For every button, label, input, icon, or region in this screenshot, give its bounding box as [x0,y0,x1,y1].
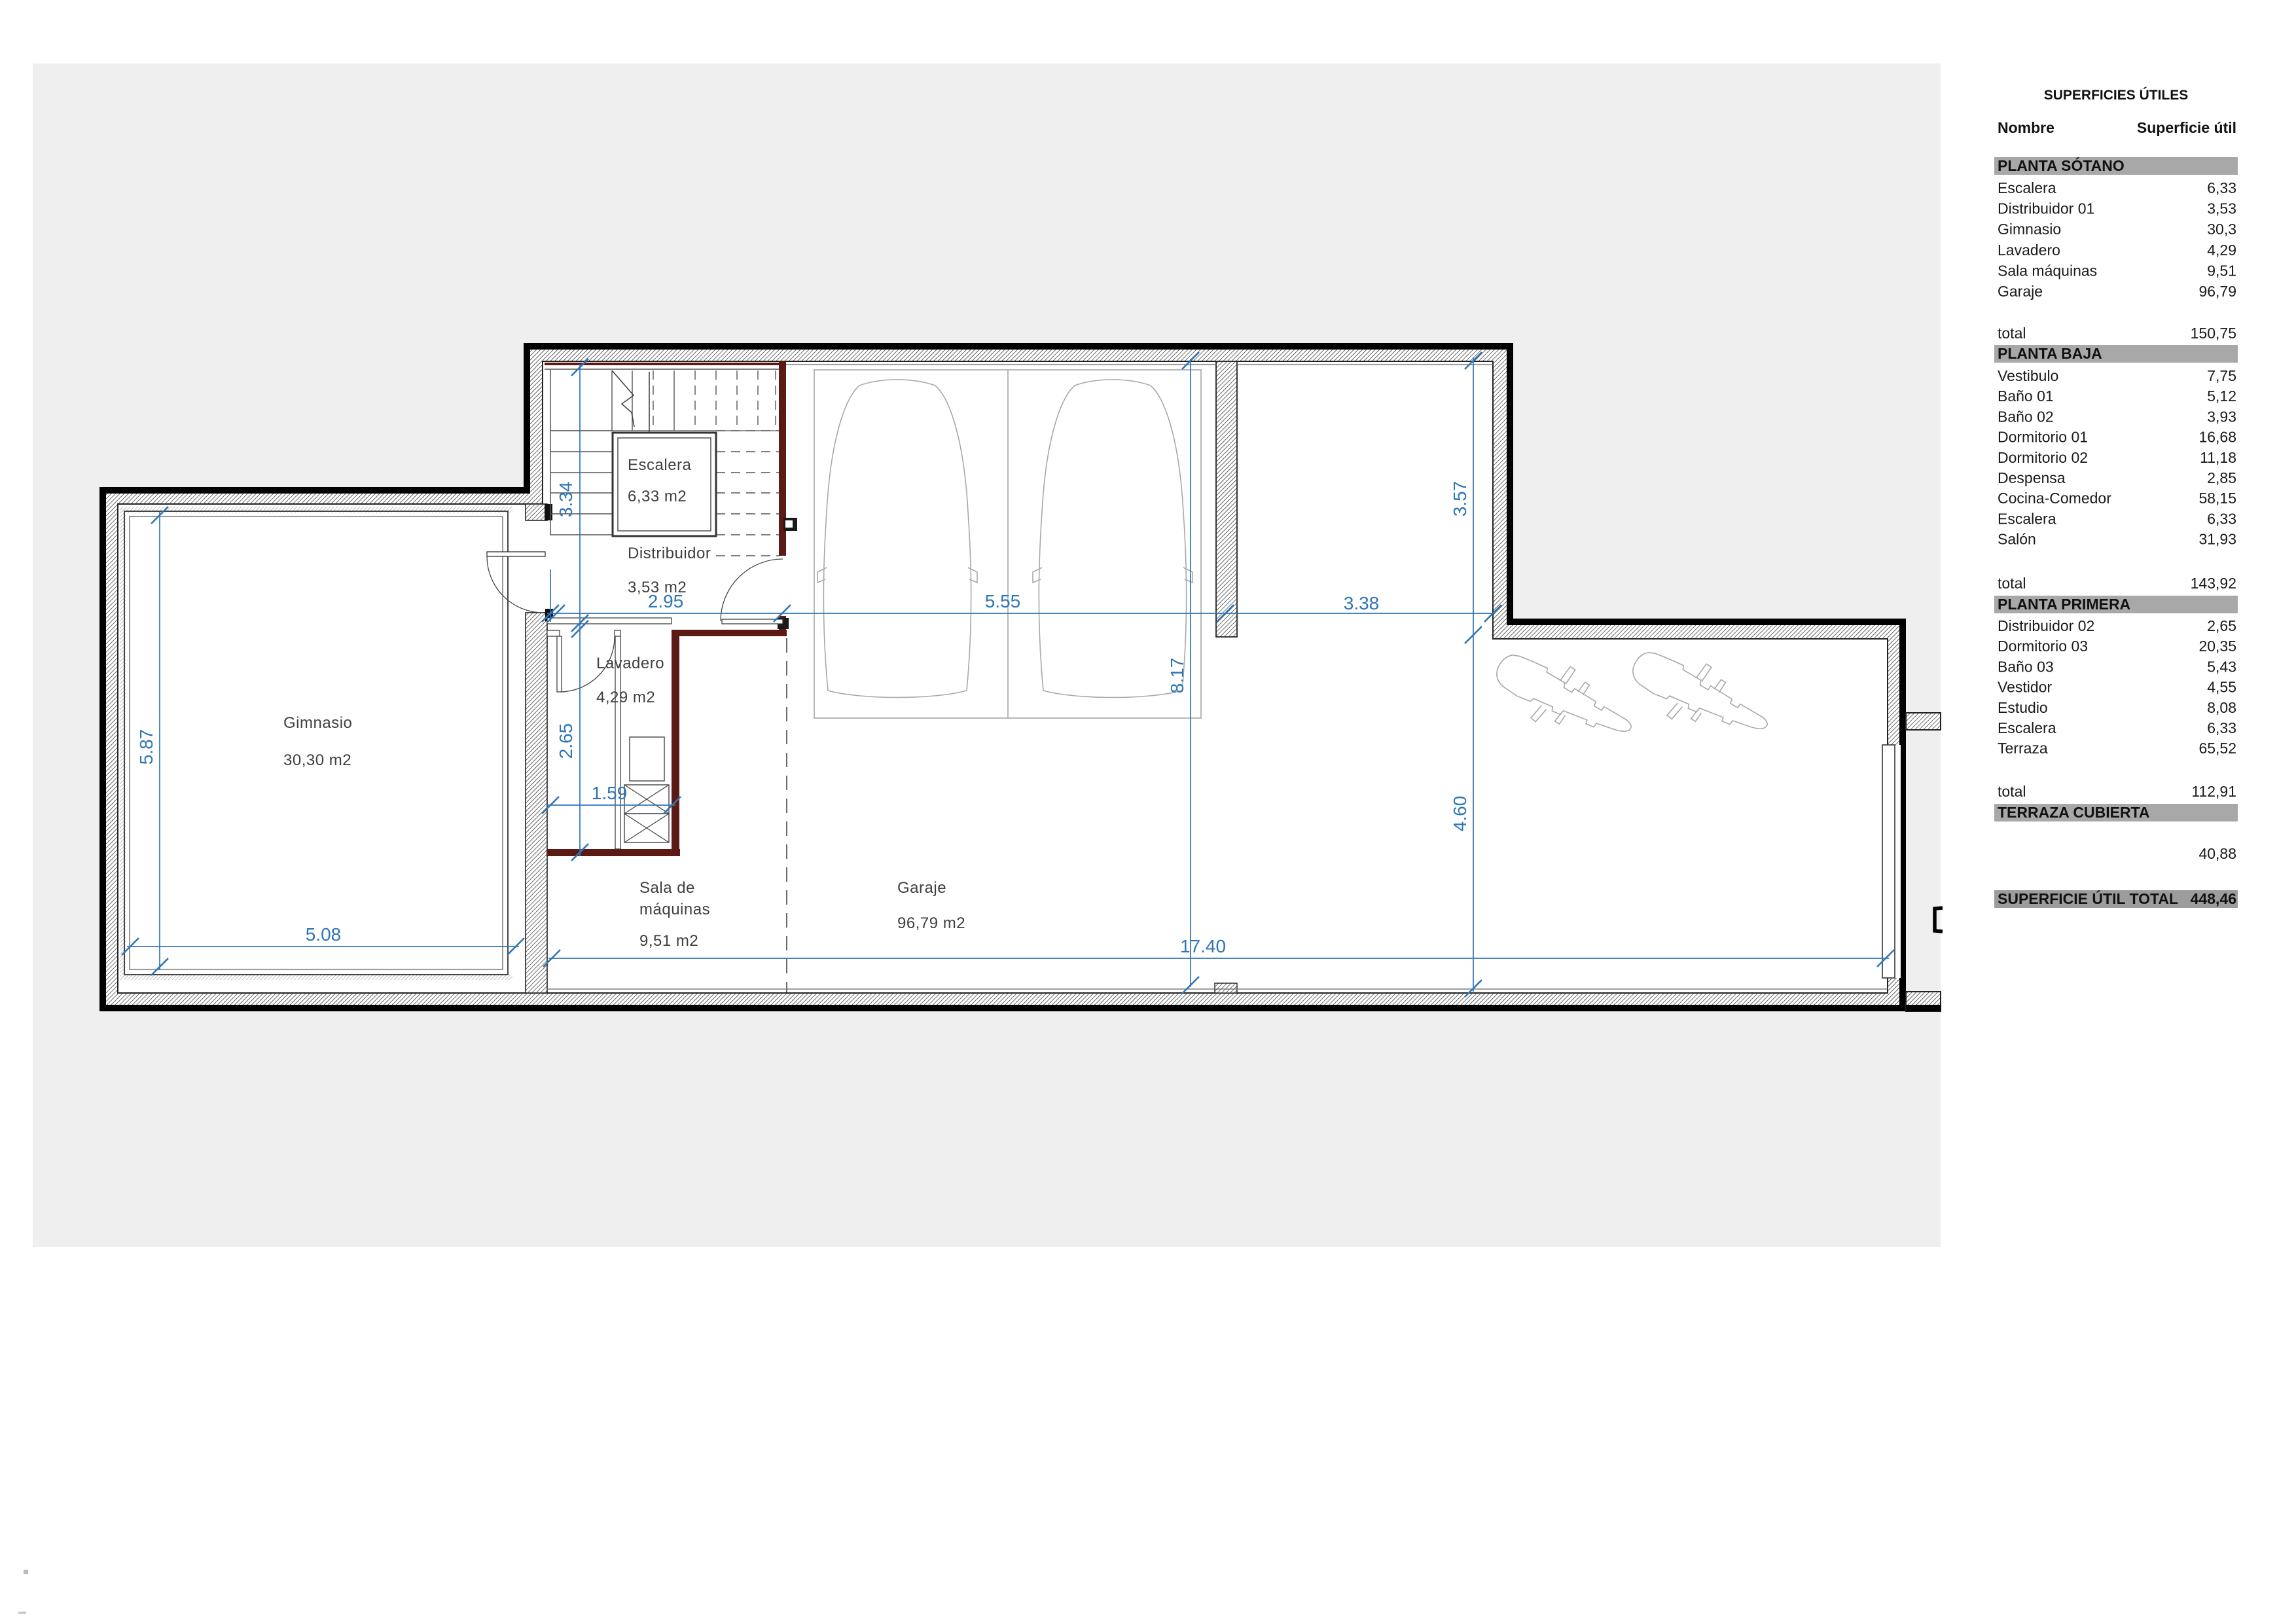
svg-text:9,51: 9,51 [2207,262,2236,279]
svg-text:Nombre: Nombre [1998,119,2054,136]
svg-text:4,29: 4,29 [2207,242,2236,259]
svg-text:5,43: 5,43 [2207,658,2236,675]
svg-text:96,79 m2: 96,79 m2 [897,914,965,932]
svg-text:Garaje: Garaje [897,879,946,897]
svg-text:Dormitorio 02: Dormitorio 02 [1998,449,2088,466]
svg-text:Cocina-Comedor: Cocina-Comedor [1998,490,2111,507]
svg-text:total: total [1998,575,2026,592]
svg-text:Vestidor: Vestidor [1998,679,2052,696]
svg-text:Distribuidor 02: Distribuidor 02 [1998,617,2094,634]
svg-text:2,85: 2,85 [2207,469,2236,486]
svg-text:8,08: 8,08 [2207,699,2236,716]
svg-text:16,68: 16,68 [2198,429,2236,446]
svg-text:31,93: 31,93 [2198,531,2236,548]
svg-text:Lavadero: Lavadero [596,655,664,672]
svg-text:SUPERFICIE ÚTIL TOTAL: SUPERFICIE ÚTIL TOTAL [1998,890,2178,907]
svg-text:3.34: 3.34 [556,482,576,518]
svg-text:11,18: 11,18 [2200,449,2236,466]
svg-text:7,75: 7,75 [2207,367,2236,384]
svg-text:5.87: 5.87 [136,729,156,765]
svg-text:3,53: 3,53 [2207,200,2236,217]
svg-text:Terraza: Terraza [1998,740,2048,757]
svg-text:Sala máquinas: Sala máquinas [1998,262,2097,279]
svg-text:Baño 01: Baño 01 [1998,388,2054,405]
svg-text:Baño 03: Baño 03 [1998,658,2054,675]
svg-text:5,12: 5,12 [2207,388,2236,405]
svg-text:143,92: 143,92 [2191,575,2236,592]
svg-text:Distribuidor 01: Distribuidor 01 [1998,200,2094,217]
svg-text:Salón: Salón [1998,531,2036,548]
svg-text:Gimnasio: Gimnasio [1998,221,2061,238]
svg-text:4.60: 4.60 [1450,796,1470,832]
svg-text:20,35: 20,35 [2198,638,2236,655]
svg-text:Dormitorio 03: Dormitorio 03 [1998,638,2088,655]
svg-text:Superficie útil: Superficie útil [2137,119,2236,136]
svg-text:Sala de: Sala de [639,879,695,897]
svg-text:17.40: 17.40 [1180,936,1226,956]
svg-text:3.38: 3.38 [1344,593,1380,613]
svg-text:2.65: 2.65 [556,723,576,759]
svg-text:9,51 m2: 9,51 m2 [639,932,698,950]
svg-text:65,52: 65,52 [2198,740,2236,757]
svg-text:máquinas: máquinas [639,901,710,918]
svg-text:3,53 m2: 3,53 m2 [628,579,687,596]
svg-text:SUPERFICIES ÚTILES: SUPERFICIES ÚTILES [2044,87,2189,103]
svg-text:total: total [1998,783,2026,800]
svg-text:Escalera: Escalera [1998,179,2056,196]
svg-text:Dormitorio 01: Dormitorio 01 [1998,429,2088,446]
svg-text:30,30 m2: 30,30 m2 [283,751,351,769]
svg-text:Estudio: Estudio [1998,699,2048,716]
svg-text:PLANTA PRIMERA: PLANTA PRIMERA [1998,596,2130,613]
svg-text:112,91: 112,91 [2191,783,2236,800]
svg-text:Vestibulo: Vestibulo [1998,367,2058,384]
svg-text:Escalera: Escalera [1998,510,2056,527]
svg-text:Distribuidor: Distribuidor [628,545,711,562]
svg-text:PLANTA SÓTANO: PLANTA SÓTANO [1998,156,2125,174]
svg-text:4,55: 4,55 [2207,679,2236,696]
svg-text:Despensa: Despensa [1998,469,2066,486]
svg-text:3.57: 3.57 [1450,481,1470,517]
svg-text:2,65: 2,65 [2207,617,2236,634]
svg-text:6,33: 6,33 [2207,179,2236,196]
svg-text:8.17: 8.17 [1167,658,1187,694]
svg-text:Garaje: Garaje [1998,283,2043,300]
svg-text:Escalera: Escalera [1998,719,2056,736]
svg-text:4,29 m2: 4,29 m2 [596,689,655,706]
svg-text:150,75: 150,75 [2191,325,2236,342]
svg-text:6,33: 6,33 [2207,719,2236,736]
svg-text:TERRAZA CUBIERTA: TERRAZA CUBIERTA [1998,804,2150,821]
svg-text:Lavadero: Lavadero [1998,242,2060,259]
svg-text:6,33 m2: 6,33 m2 [628,488,687,505]
svg-text:Gimnasio: Gimnasio [283,714,352,732]
svg-text:1.59: 1.59 [592,783,628,803]
svg-text:5.55: 5.55 [985,591,1021,611]
svg-text:PLANTA BAJA: PLANTA BAJA [1998,345,2102,362]
svg-text:5.08: 5.08 [306,924,342,945]
svg-text:30,3: 30,3 [2207,221,2236,238]
svg-text:40,88: 40,88 [2198,845,2236,862]
svg-text:448,46: 448,46 [2191,890,2236,907]
svg-text:3,93: 3,93 [2207,408,2236,425]
svg-text:Escalera: Escalera [628,456,692,474]
svg-text:6,33: 6,33 [2207,510,2236,527]
svg-text:96,79: 96,79 [2198,283,2236,300]
svg-text:58,15: 58,15 [2198,490,2236,507]
svg-text:Baño 02: Baño 02 [1998,408,2054,425]
svg-text:total: total [1998,325,2026,342]
